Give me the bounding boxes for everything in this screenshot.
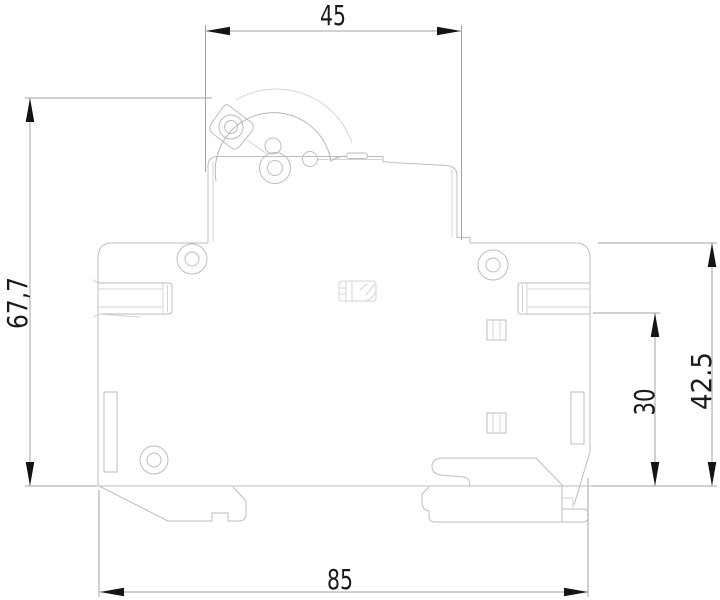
arrow-up-icon: [708, 243, 717, 267]
dimension-lines: [30, 31, 712, 592]
breaker-body: [98, 243, 592, 505]
toggle-mechanism: [210, 89, 352, 183]
terminal-right: [518, 283, 590, 314]
top-face-slot: [347, 153, 368, 159]
dimension-label-85: 85: [327, 563, 353, 596]
dimension-label-67-7: 67,7: [1, 277, 34, 329]
din-rail-clip-right: [422, 458, 589, 522]
breaker-upper-housing: [208, 153, 470, 243]
arrow-down-icon: [708, 462, 717, 486]
arrow-right-icon: [564, 588, 588, 597]
arrow-left-icon: [100, 588, 124, 597]
vent-detail-upper: [487, 320, 506, 340]
arrow-left-icon: [206, 27, 230, 36]
dimension-label-45: 45: [320, 0, 346, 32]
screw-head: [140, 446, 168, 474]
technical-drawing-canvas: 45 67,7 42.5 30 85: [0, 0, 720, 600]
pivot-circle: [265, 138, 281, 154]
lever-sector-arc: [215, 113, 345, 181]
lever-arm-line: [247, 140, 267, 154]
arrow-up-icon: [26, 98, 35, 122]
center-detail-plate: [339, 281, 376, 301]
vent-detail-lower: [487, 413, 506, 433]
dimension-label-42-5: 42.5: [685, 352, 718, 410]
arrow-down-icon: [651, 462, 660, 486]
extension-lines: [25, 25, 717, 597]
side-slot-right: [571, 392, 584, 444]
terminal-left: [93, 280, 172, 318]
toggle-lever-knob: [210, 105, 254, 149]
pivot-circle: [260, 153, 291, 184]
arrow-right-icon: [437, 27, 461, 36]
screw-head: [478, 250, 508, 280]
side-slot-left: [104, 392, 117, 472]
breaker-side-view-drawing: 45 67,7 42.5 30 85: [0, 0, 720, 600]
din-rail-clip-left: [100, 487, 246, 522]
dimension-labels: 45 67,7 42.5 30 85: [1, 0, 718, 596]
pivot-circle: [303, 152, 318, 167]
arrow-up-icon: [651, 313, 660, 337]
dimension-arrowheads: [26, 27, 717, 597]
screw-head: [177, 244, 207, 274]
arrow-down-icon: [26, 462, 35, 486]
dimension-label-30: 30: [628, 389, 661, 416]
